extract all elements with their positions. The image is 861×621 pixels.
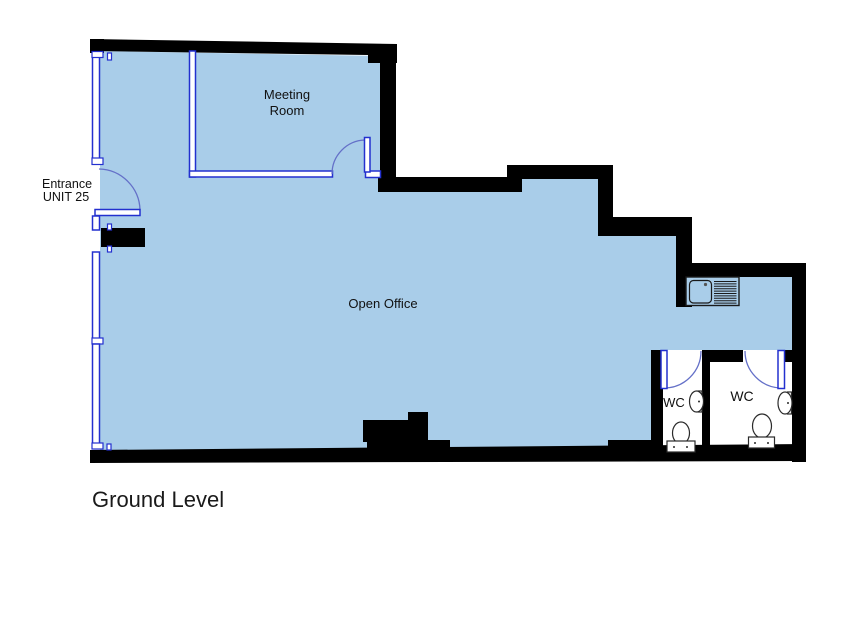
toilet-icon — [753, 414, 772, 438]
wc-left-door-leaf — [661, 351, 667, 389]
wc-right-label: WC — [730, 388, 753, 404]
basin-icon — [778, 392, 792, 414]
window-sill — [92, 443, 103, 449]
floor-plan-drawing: Meeting Room Entrance UNIT 25 Open Offic… — [0, 0, 861, 621]
wall-right-outer — [792, 263, 806, 462]
basin-icon — [690, 391, 704, 412]
wall-column-2 — [408, 412, 428, 442]
frame-end-cap — [108, 53, 112, 60]
toilet-cistern — [749, 437, 775, 448]
meeting-room-wall-horizontal — [190, 171, 333, 177]
meeting-room-door-leaf — [365, 138, 371, 173]
frame-end-cap — [108, 246, 112, 252]
window-sill — [92, 158, 103, 165]
floor-plan-page: Meeting Room Entrance UNIT 25 Open Offic… — [0, 0, 861, 621]
window-upper — [93, 57, 100, 160]
entrance-label-line1: Entrance — [42, 177, 92, 191]
window-lower — [93, 344, 100, 444]
toilet-cistern — [667, 441, 695, 452]
plan-title: Ground Level — [92, 487, 224, 512]
wc-right-door-leaf — [778, 351, 785, 389]
meeting-room-label-line1: Meeting — [264, 87, 310, 102]
wall-step-2-vertical — [598, 165, 613, 217]
wc-left-label: WC — [663, 395, 685, 410]
wall-kitchen-top — [676, 263, 806, 277]
entrance-label-line2: UNIT 25 — [43, 190, 89, 204]
window-sill — [92, 338, 103, 344]
open-office-label: Open Office — [348, 296, 417, 311]
window-sill — [92, 52, 103, 58]
sink-icon — [686, 277, 739, 306]
window-middle — [93, 252, 100, 340]
meeting-room-label-line2: Room — [270, 103, 305, 118]
meeting-room-wall-vertical — [190, 51, 196, 177]
wall-step-1 — [378, 177, 522, 192]
frame-end-cap — [107, 444, 111, 450]
wall-column-base — [367, 440, 450, 453]
wall-entrance-pier — [101, 228, 145, 247]
wall-step-2 — [507, 165, 613, 179]
frame-end-cap — [108, 224, 112, 230]
wall-meeting-right — [380, 44, 396, 177]
entrance-door-leaf — [95, 210, 140, 216]
entrance-door-frame — [93, 216, 100, 230]
